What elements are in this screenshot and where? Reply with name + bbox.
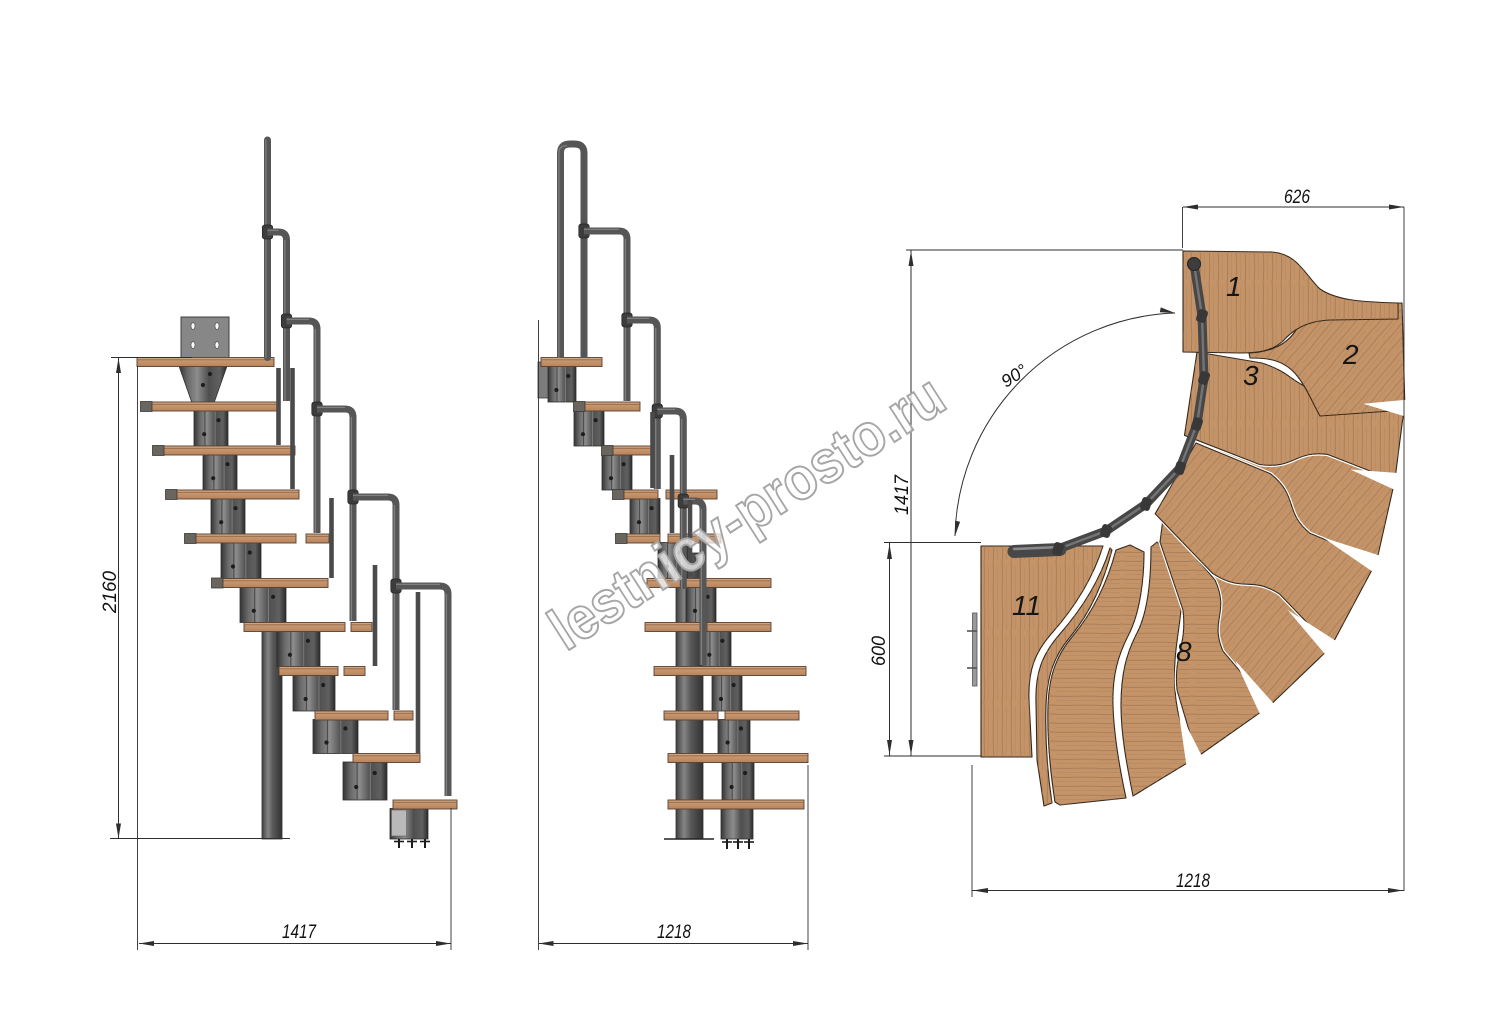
svg-text:3: 3	[1243, 360, 1259, 391]
svg-text:11: 11	[1012, 590, 1041, 621]
svg-text:8: 8	[1176, 636, 1192, 667]
svg-text:2160: 2160	[100, 571, 121, 614]
svg-text:2: 2	[1342, 339, 1359, 370]
svg-text:1: 1	[1226, 271, 1242, 302]
svg-text:626: 626	[1284, 187, 1310, 208]
svg-text:1218: 1218	[657, 922, 691, 943]
svg-text:1218: 1218	[1176, 871, 1210, 892]
svg-text:1417: 1417	[892, 474, 913, 515]
svg-text:600: 600	[869, 636, 890, 666]
svg-text:1417: 1417	[282, 922, 317, 943]
